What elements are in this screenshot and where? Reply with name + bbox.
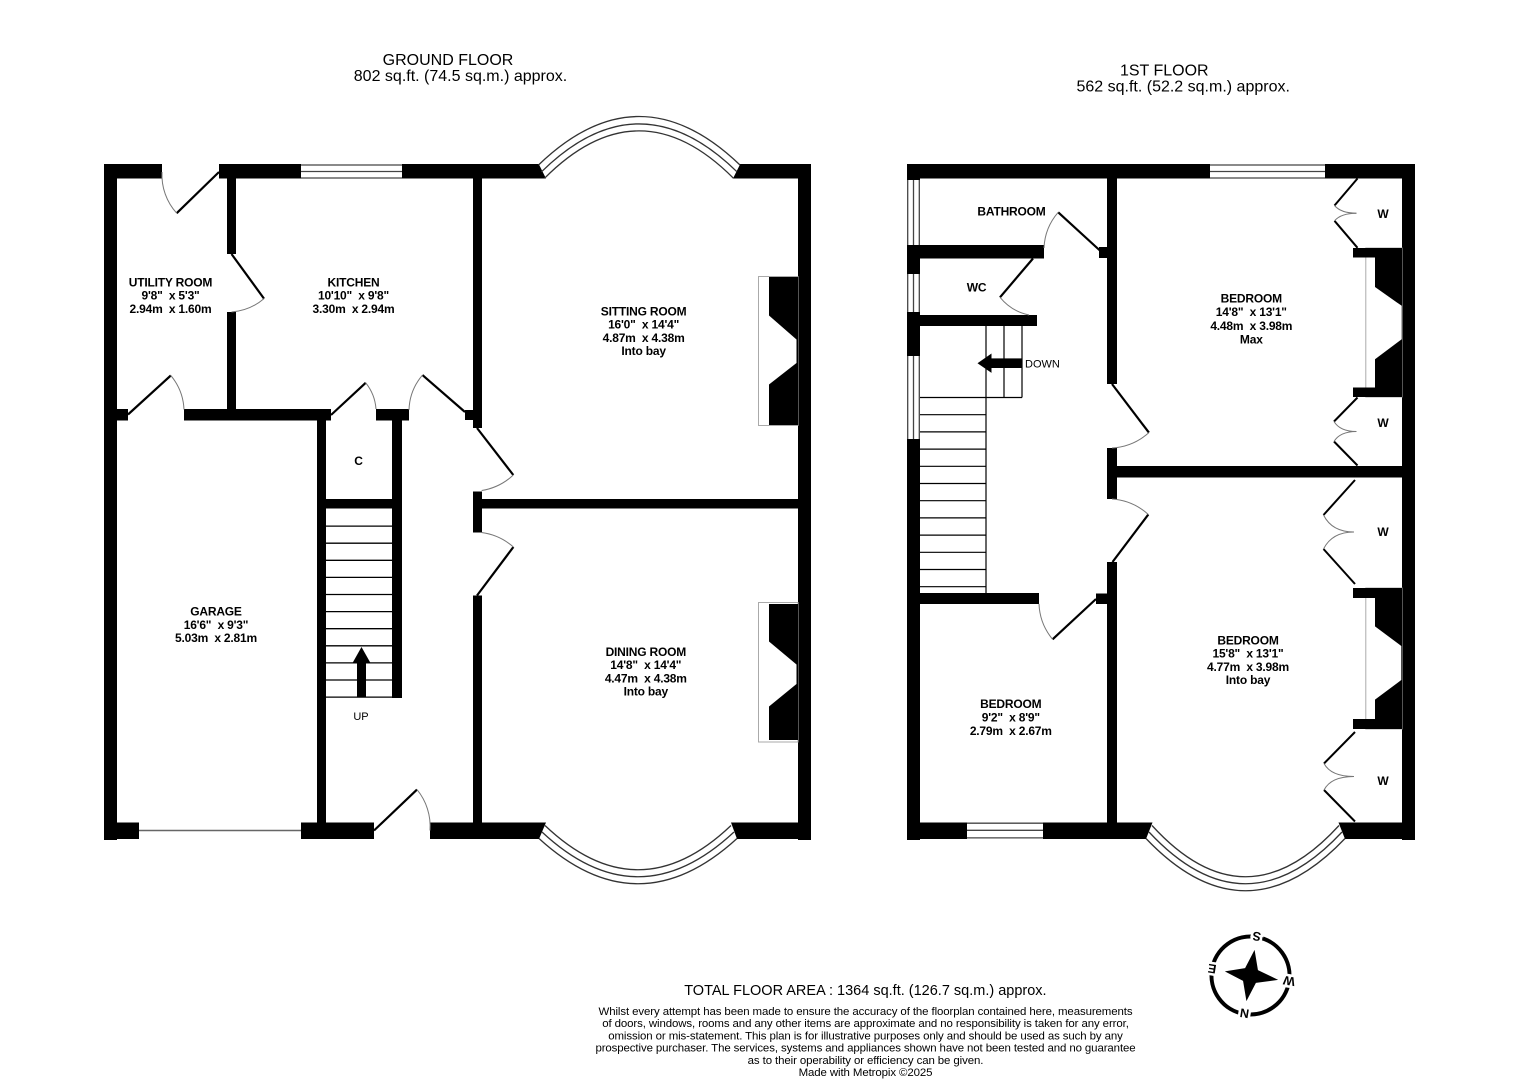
svg-text:C: C bbox=[354, 454, 363, 468]
svg-text:W: W bbox=[1377, 774, 1389, 788]
svg-text:802 sq.ft. (74.5 sq.m.) approx: 802 sq.ft. (74.5 sq.m.) approx. bbox=[354, 68, 567, 85]
svg-text:Into bay: Into bay bbox=[624, 685, 669, 699]
svg-text:GARAGE: GARAGE bbox=[190, 605, 242, 619]
svg-text:9'8" x 5'3": 9'8" x 5'3" bbox=[141, 289, 199, 303]
svg-text:4.48m x 3.98m: 4.48m x 3.98m bbox=[1210, 319, 1292, 333]
svg-text:Into bay: Into bay bbox=[1226, 673, 1271, 687]
svg-text:GROUND FLOOR: GROUND FLOOR bbox=[383, 52, 514, 69]
svg-text:1ST FLOOR: 1ST FLOOR bbox=[1120, 63, 1209, 80]
svg-text:4.47m x 4.38m: 4.47m x 4.38m bbox=[605, 671, 687, 685]
svg-text:10'10" x 9'8": 10'10" x 9'8" bbox=[318, 289, 389, 303]
svg-text:Whilst every attempt has been: Whilst every attempt has been made to en… bbox=[599, 1006, 1133, 1018]
svg-text:BEDROOM: BEDROOM bbox=[980, 697, 1041, 711]
svg-text:prospective purchaser. The ser: prospective purchaser. The services, sys… bbox=[595, 1043, 1135, 1055]
svg-text:W: W bbox=[1282, 973, 1296, 989]
svg-text:omission or mis-statement. Thi: omission or mis-statement. This plan is … bbox=[608, 1030, 1123, 1042]
svg-text:3.30m x 2.94m: 3.30m x 2.94m bbox=[313, 302, 395, 316]
svg-text:4.87m x 4.38m: 4.87m x 4.38m bbox=[603, 331, 685, 345]
svg-text:16'0" x 14'4": 16'0" x 14'4" bbox=[608, 318, 679, 332]
svg-text:4.77m x 3.98m: 4.77m x 3.98m bbox=[1207, 660, 1289, 674]
svg-text:Into bay: Into bay bbox=[621, 344, 666, 358]
svg-text:14'8" x 13'1": 14'8" x 13'1" bbox=[1216, 305, 1287, 319]
svg-text:KITCHEN: KITCHEN bbox=[328, 275, 380, 289]
svg-text:W: W bbox=[1377, 525, 1389, 539]
svg-text:DOWN: DOWN bbox=[1025, 358, 1060, 370]
svg-text:W: W bbox=[1377, 416, 1389, 430]
svg-text:UTILITY ROOM: UTILITY ROOM bbox=[129, 275, 213, 289]
svg-text:15'8" x 13'1": 15'8" x 13'1" bbox=[1212, 647, 1283, 661]
svg-text:Made with Metropix ©2025: Made with Metropix ©2025 bbox=[799, 1067, 933, 1079]
svg-text:TOTAL FLOOR AREA : 1364 sq.ft.: TOTAL FLOOR AREA : 1364 sq.ft. (126.7 sq… bbox=[684, 983, 1046, 999]
svg-text:BEDROOM: BEDROOM bbox=[1217, 633, 1278, 647]
svg-text:2.79m x 2.67m: 2.79m x 2.67m bbox=[970, 724, 1052, 738]
svg-text:as to their operability or eff: as to their operability or efficiency ca… bbox=[748, 1055, 984, 1067]
svg-text:SITTING ROOM: SITTING ROOM bbox=[601, 305, 687, 319]
svg-text:UP: UP bbox=[353, 711, 368, 723]
svg-text:BEDROOM: BEDROOM bbox=[1221, 292, 1282, 306]
svg-text:WC: WC bbox=[967, 281, 987, 295]
svg-text:16'6" x 9'3": 16'6" x 9'3" bbox=[184, 618, 249, 632]
svg-text:Max: Max bbox=[1240, 332, 1263, 346]
svg-text:2.94m x 1.60m: 2.94m x 1.60m bbox=[130, 302, 212, 316]
svg-text:5.03m x 2.81m: 5.03m x 2.81m bbox=[175, 631, 257, 645]
svg-text:DINING ROOM: DINING ROOM bbox=[606, 645, 687, 659]
svg-text:14'8" x 14'4": 14'8" x 14'4" bbox=[610, 658, 681, 672]
svg-text:BATHROOM: BATHROOM bbox=[977, 205, 1045, 219]
svg-text:of doors, windows, rooms and a: of doors, windows, rooms and any other i… bbox=[602, 1018, 1129, 1030]
svg-text:562 sq.ft. (52.2 sq.m.) approx: 562 sq.ft. (52.2 sq.m.) approx. bbox=[1076, 79, 1289, 96]
svg-text:W: W bbox=[1377, 207, 1389, 221]
svg-text:9'2" x 8'9": 9'2" x 8'9" bbox=[982, 711, 1040, 725]
